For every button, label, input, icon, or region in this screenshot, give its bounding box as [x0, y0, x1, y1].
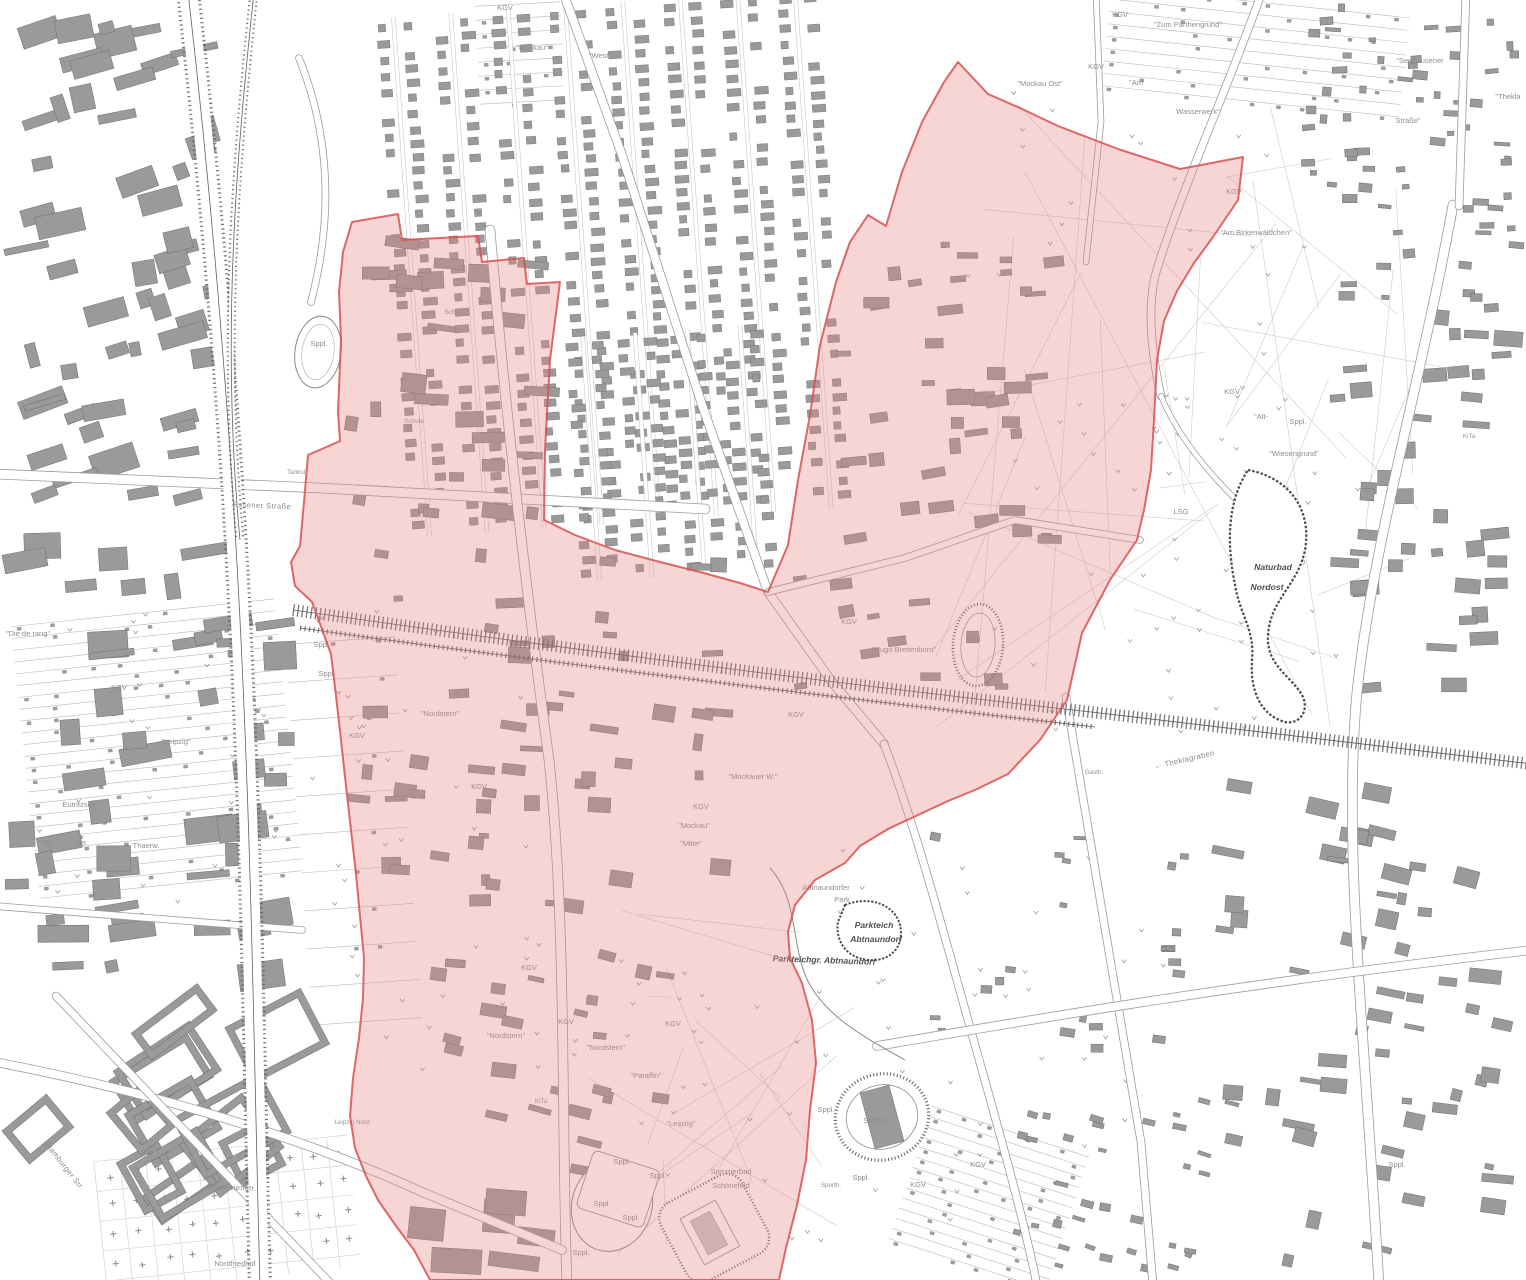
map-label: An — [43, 838, 52, 847]
map-label: der — [76, 838, 87, 847]
city-map[interactable]: KGV"Mockau""West"KGV"Zum Parthengrund""M… — [0, 0, 1526, 1280]
map-label: Thaerw. — [133, 841, 160, 850]
map-label: ← Theklagraben — [1153, 748, 1215, 771]
map-label: Sporth. — [821, 1182, 842, 1189]
map-label: Tankst. — [287, 469, 307, 476]
map-label: Eutritzsch — [63, 800, 96, 809]
map-label: Theresienstr. — [207, 1182, 256, 1193]
map-label: KGV — [1224, 387, 1240, 396]
map-label: "Zum Parthengrund" — [1154, 20, 1222, 29]
map-label: "Am — [1129, 78, 1143, 87]
map-label: KGV — [1088, 62, 1104, 71]
map-label: "Alt- — [1254, 412, 1268, 421]
map-label: Sppl. — [852, 1173, 869, 1182]
map-label: KiTa — [1463, 433, 1476, 440]
map-label: LSG — [1173, 507, 1188, 516]
map-label: Nordost — [1251, 582, 1285, 592]
map-label: Straße" — [1395, 116, 1421, 125]
map-label: KGV — [111, 683, 127, 692]
map-label: Naturbad — [1254, 562, 1292, 572]
map-label: "Mockau Ost" — [1017, 79, 1063, 88]
map-label: Gasth. — [1085, 769, 1104, 776]
map-label: "Mockau" — [516, 43, 548, 52]
map-label: Sppl. — [817, 1105, 834, 1114]
map-label: Hamburger Str. — [44, 1141, 86, 1192]
map-label: Nordfriedhof — [214, 1259, 256, 1268]
map-label: "Seehausener — [1396, 56, 1444, 65]
map-label: Wasserwerk" — [1176, 107, 1220, 116]
map-label: Parkteich — [855, 920, 894, 930]
map-label: KGV — [910, 1180, 926, 1189]
map-label: KGV — [497, 3, 513, 12]
map-label: "Die de rang" — [6, 629, 50, 638]
map-viewport[interactable]: KGV"Mockau""West"KGV"Zum Parthengrund""M… — [0, 0, 1526, 1280]
map-label: "Thekla — [1495, 92, 1521, 101]
map-label: Sppl. — [310, 339, 327, 348]
map-label: KGV — [970, 1160, 986, 1169]
map-label: "Am Birkenwäldchen" — [1220, 228, 1292, 237]
map-label: Sppl. — [1388, 1160, 1405, 1169]
map-label: Park — [834, 895, 850, 904]
map-label: "West" — [589, 51, 612, 60]
map-label: KGV — [1112, 10, 1128, 19]
map-label: "Leipzig" — [161, 737, 190, 746]
map-label: "Wiesengrund" — [1269, 449, 1319, 458]
map-label: Stadion — [863, 1116, 888, 1125]
map-label: Abtnaundorf — [849, 934, 903, 944]
map-label: Sppl. — [1289, 417, 1306, 426]
